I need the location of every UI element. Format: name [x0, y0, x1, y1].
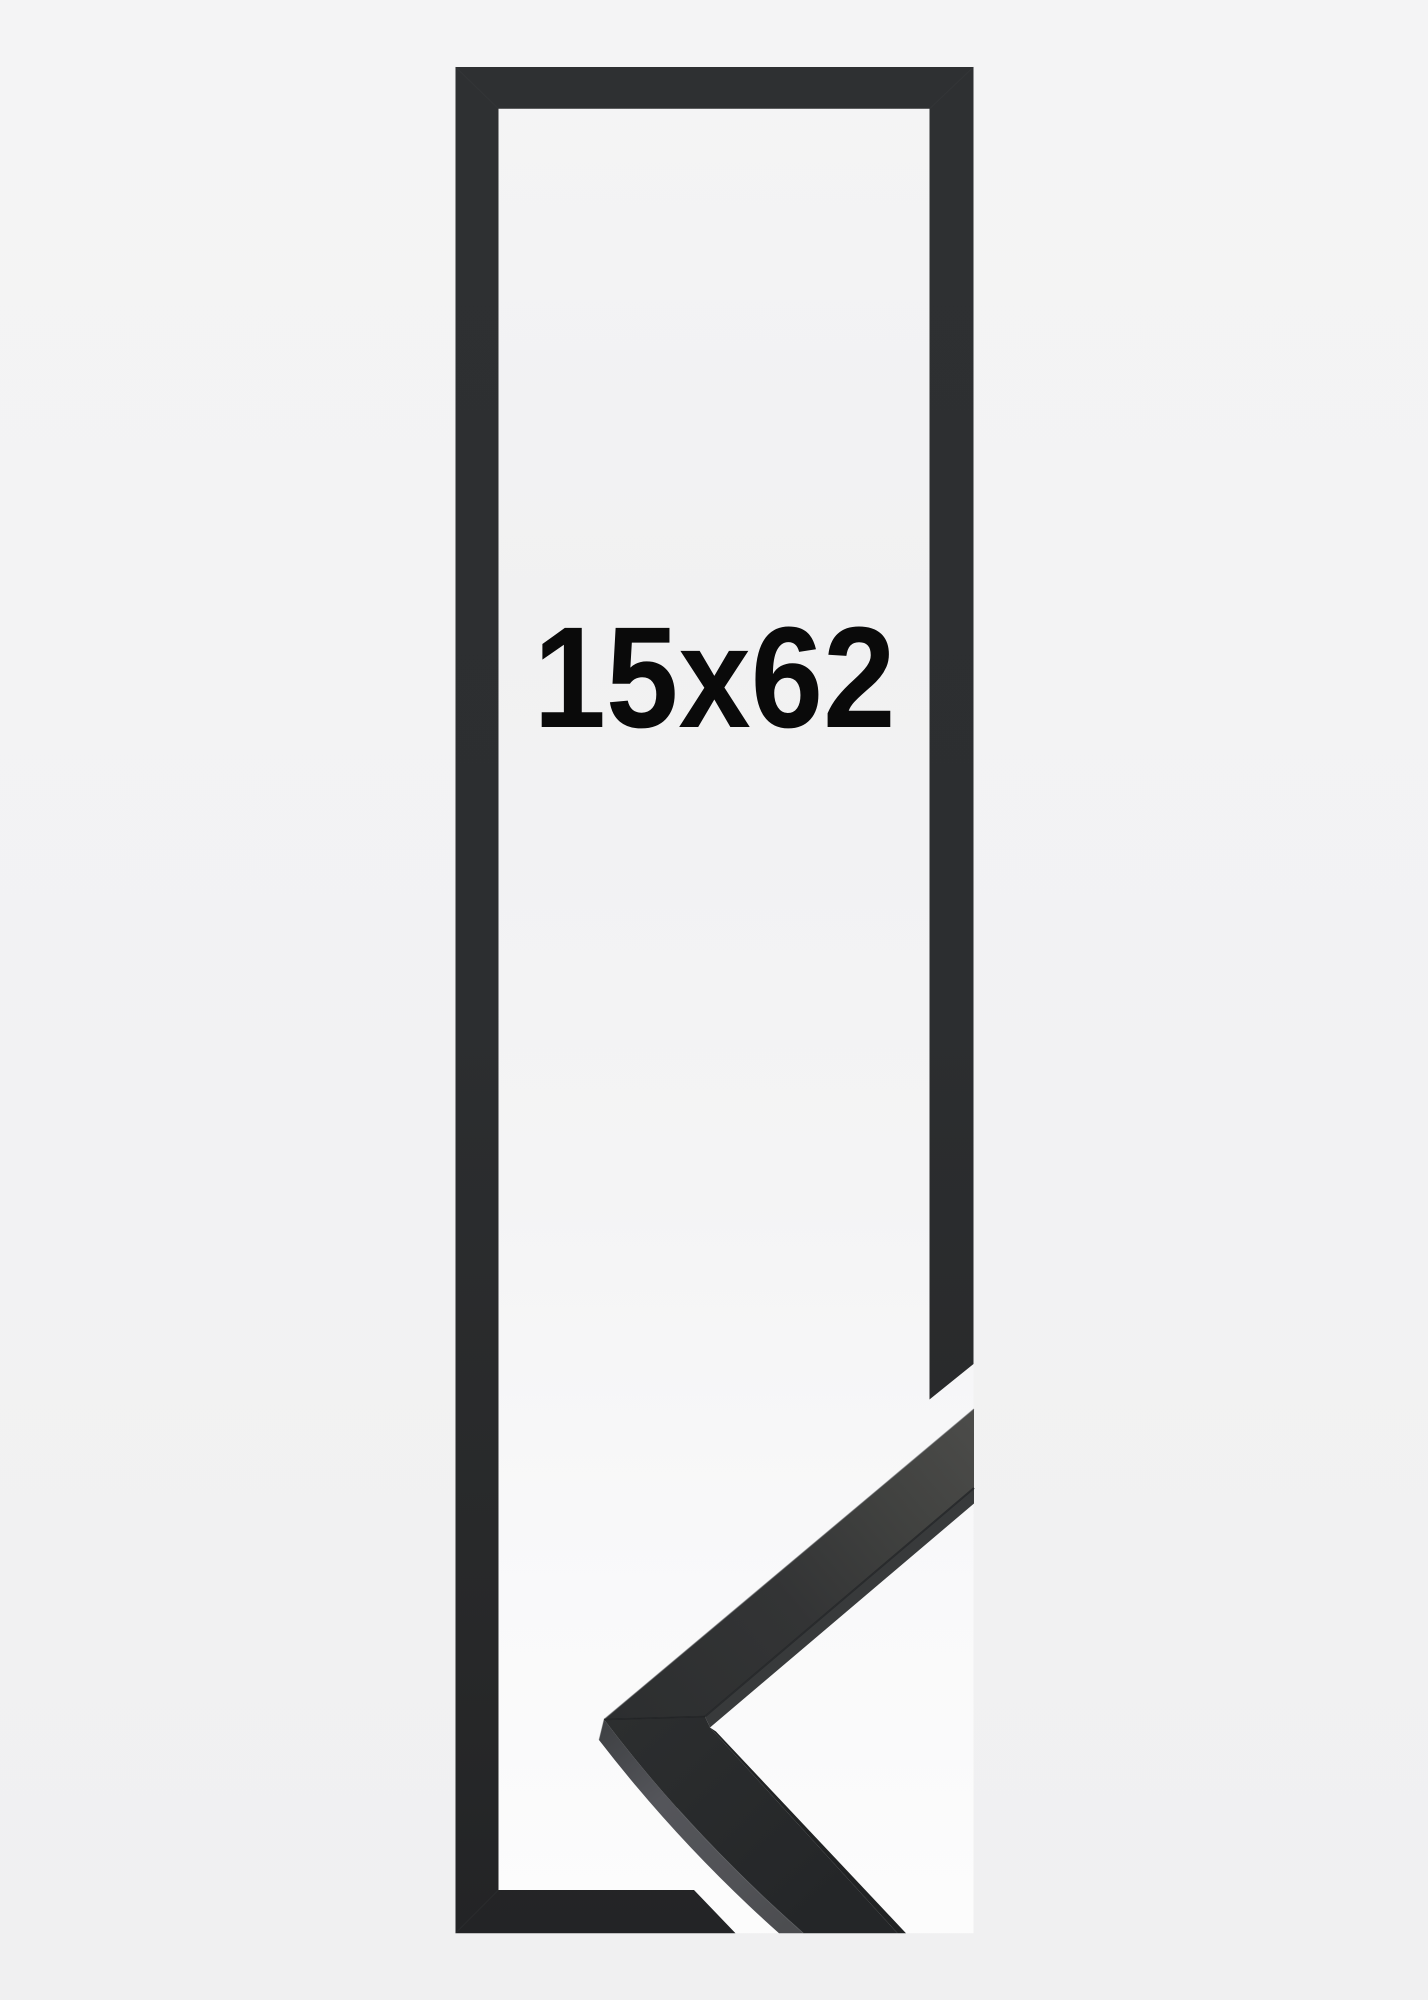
svg-text:15x62: 15x62	[534, 597, 896, 758]
